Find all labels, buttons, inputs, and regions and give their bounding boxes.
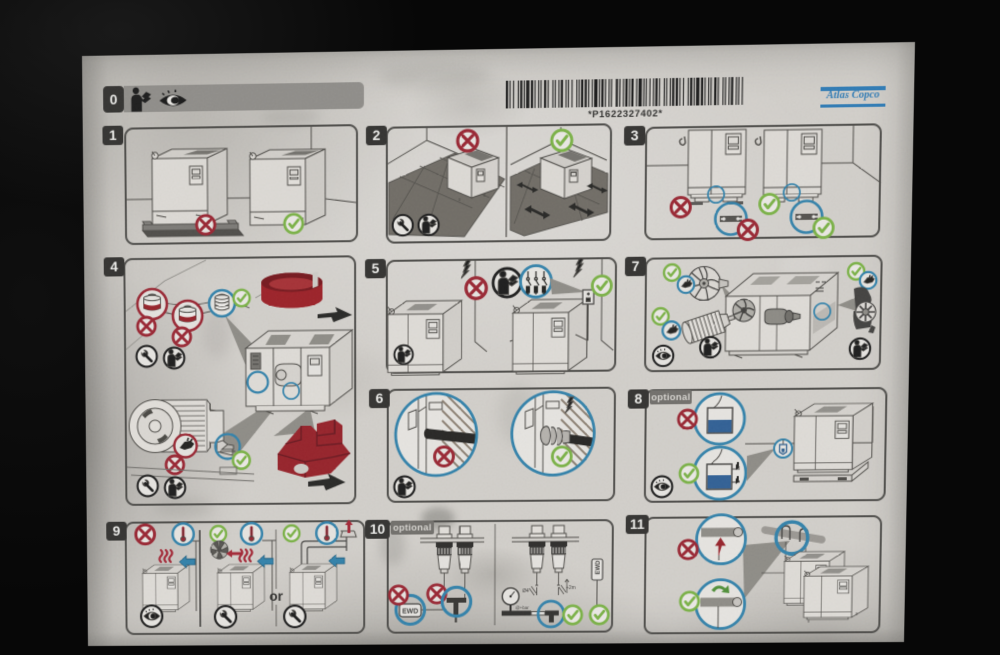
svg-text:or: or — [269, 588, 283, 604]
svg-text:+2m: +2m — [566, 585, 576, 591]
svg-text:@+bar: @+bar — [515, 605, 529, 610]
svg-text:Ø4: Ø4 — [522, 588, 529, 594]
svg-text:EWD: EWD — [596, 560, 602, 575]
svg-text:EWD: EWD — [402, 608, 418, 615]
